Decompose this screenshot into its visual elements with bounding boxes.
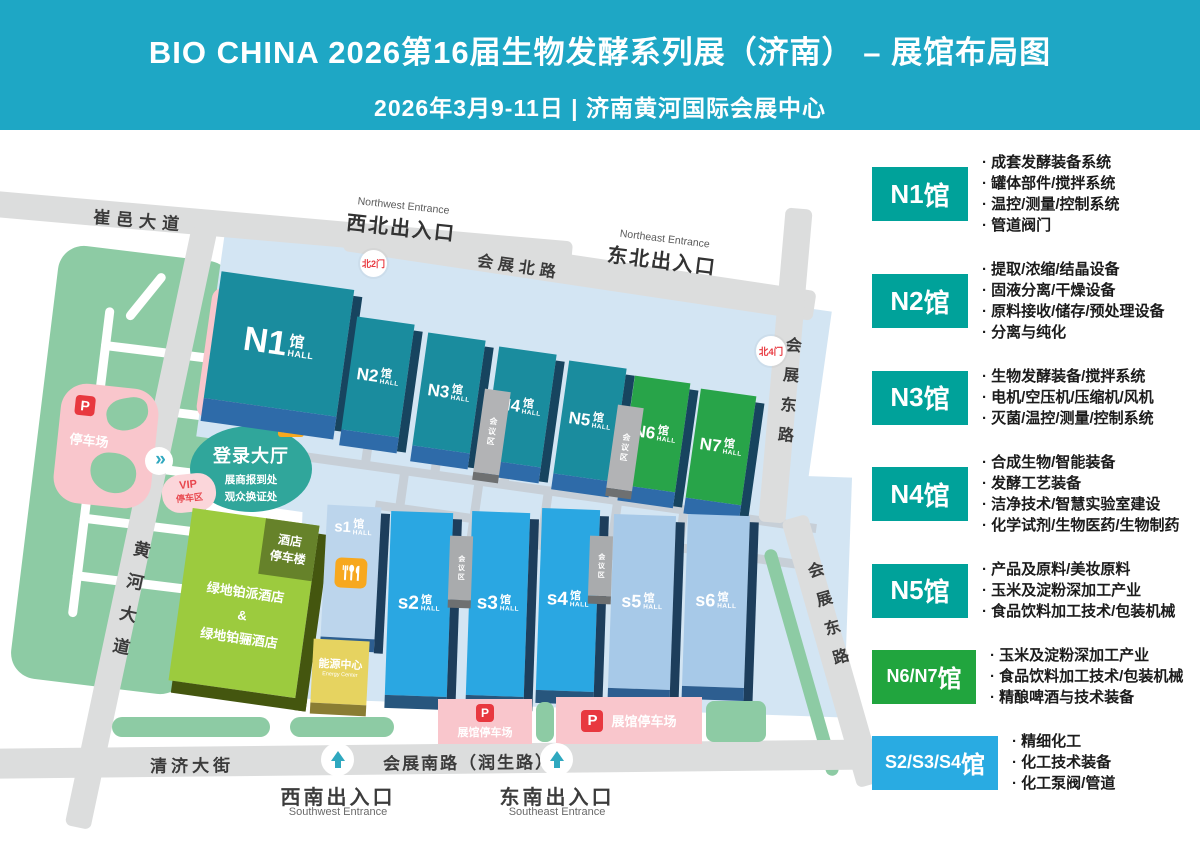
parking-lane-line — [124, 271, 167, 322]
chevrons-icon: » — [155, 449, 163, 470]
gate-north4-badge: 北4门 — [756, 336, 786, 366]
legend-item: 发酵工艺装备 — [982, 473, 1180, 494]
southeast-gate-icon — [540, 743, 573, 776]
bush-blob — [88, 451, 138, 496]
legend-item: 罐体部件/搅拌系统 — [982, 173, 1120, 194]
legend-item: 食品饮料加工技术/包装机械 — [990, 666, 1183, 687]
legend-hall-prefix: N3 — [890, 382, 923, 413]
hall-s3-label: s3 — [476, 592, 498, 615]
legend-hall-prefix: N5 — [890, 575, 923, 606]
hall-n2-label: N2 — [355, 364, 379, 387]
hall-s1-label: s1 — [334, 519, 352, 537]
southwest-gate-icon — [321, 743, 354, 776]
legend-box-n6n7: N6/N7馆 — [872, 650, 976, 704]
energy-center-front — [310, 702, 366, 716]
legend-item: 原料接收/储存/预处理设备 — [982, 301, 1165, 322]
road-label-huizhan-south: 会展南路（润生路） — [383, 748, 554, 775]
hall-sub: HALL — [722, 450, 742, 459]
gate-north4-label: 北4门 — [759, 344, 783, 358]
parking-icon: P — [581, 710, 603, 732]
legend: N1馆 成套发酵装备系统 罐体部件/搅拌系统 温控/测量/控制系统 管道阀门 N… — [872, 152, 1194, 817]
hall-sub: HALL — [450, 396, 470, 405]
meeting-area-label: 会议区 — [484, 416, 499, 447]
hall-sub: HALL — [421, 606, 441, 613]
legend-row-n5: N5馆 产品及原料/美妆原料 玉米及淀粉深加工产业 食品饮料加工技术/包装机械 — [872, 559, 1194, 622]
hotel-parking-tower: 酒店 停车楼 — [258, 518, 319, 581]
parking-p: P — [587, 712, 597, 729]
hall-parking-lot-b: P 展馆停车场 — [556, 697, 702, 744]
legend-row-n1: N1馆 成套发酵装备系统 罐体部件/搅拌系统 温控/测量/控制系统 管道阀门 — [872, 152, 1194, 236]
hall-sub: HALL — [717, 603, 737, 610]
parking-lane-line — [101, 341, 219, 364]
legend-hall-prefix: N6/N7 — [886, 666, 937, 687]
header-banner: BIO CHINA 2026第16届生物发酵系列展（济南） – 展馆布局图 20… — [0, 0, 1200, 130]
legend-hall-suffix: 馆 — [924, 379, 950, 416]
hedge-south-3 — [536, 702, 554, 742]
hall-sub: HALL — [570, 602, 590, 609]
road-south: 清济大街 会展南路（润生路） — [0, 739, 893, 778]
hall-n7-label: N7 — [698, 434, 722, 457]
gate-north2-badge: 北2门 — [360, 250, 387, 277]
hall-sub: HALL — [379, 380, 399, 389]
legend-row-n4: N4馆 合成生物/智能装备 发酵工艺装备 洁净技术/智慧实验室建设 化学试剂/生… — [872, 452, 1194, 536]
hall-parking-label: 展馆停车场 — [611, 711, 676, 730]
hedge-south-4 — [706, 701, 766, 742]
meeting-area-label: 会议区 — [617, 432, 632, 463]
legend-box-n2: N2馆 — [872, 274, 968, 328]
energy-center: 能源中心 Energy Center — [310, 639, 369, 706]
meeting-area-label: 会议区 — [595, 552, 606, 579]
page-subtitle: 2026年3月9-11日 | 济南黄河国际会展中心 — [0, 89, 1200, 123]
hall-parking-label: 展馆停车场 — [458, 724, 513, 740]
restaurant-box — [334, 557, 368, 589]
legend-row-n6n7: N6/N7馆 玉米及淀粉深加工产业 食品饮料加工技术/包装机械 精酿啤酒与技术装… — [872, 645, 1194, 708]
legend-item: 玉米及淀粉深加工产业 — [982, 580, 1175, 601]
legend-item: 生物发酵装备/搅拌系统 — [982, 366, 1154, 387]
legend-item: 成套发酵装备系统 — [982, 152, 1120, 173]
legend-item: 管道阀门 — [982, 215, 1120, 236]
parking-icon: P — [74, 395, 96, 417]
hall-n3-label: N3 — [426, 380, 450, 403]
meeting-area-label: 会议区 — [455, 554, 466, 581]
up-arrow-icon — [550, 751, 564, 761]
legend-item: 化学试剂/生物医药/生物制药 — [982, 515, 1180, 536]
legend-box-n3: N3馆 — [872, 371, 968, 425]
legend-hall-prefix: N4 — [890, 479, 923, 510]
legend-item: 洁净技术/智慧实验室建设 — [982, 494, 1180, 515]
up-arrow-stem — [335, 761, 341, 768]
legend-hall-suffix: 馆 — [938, 659, 962, 694]
legend-row-n3: N3馆 生物发酵装备/搅拌系统 电机/空压机/压缩机/风机 灭菌/温控/测量/控… — [872, 366, 1194, 429]
legend-hall-suffix: 馆 — [924, 572, 950, 609]
legend-hall-suffix: 馆 — [924, 283, 950, 320]
meeting-area-s4-s5: 会议区 — [588, 536, 613, 597]
legend-hall-suffix: 馆 — [924, 176, 950, 213]
hotel-front — [171, 681, 307, 712]
legend-box-s2s3s4: S2/S3/S4馆 — [872, 736, 998, 790]
legend-item: 精酿啤酒与技术装备 — [990, 687, 1183, 708]
legend-items-n3: 生物发酵装备/搅拌系统 电机/空压机/压缩机/风机 灭菌/温控/测量/控制系统 — [982, 366, 1154, 429]
hall-sub: HALL — [643, 604, 663, 611]
legend-box-n1: N1馆 — [872, 167, 968, 221]
bush-blob — [104, 395, 150, 433]
parking-icon: P — [476, 704, 494, 722]
hall-s6-label: s6 — [695, 590, 716, 612]
meeting-area-s2-s3: 会议区 — [448, 536, 473, 601]
hall-s6: s6 馆HALL — [682, 514, 750, 688]
west-parking-lot: P 停车场 — [51, 381, 161, 511]
energy-center-zh: 能源中心 — [312, 655, 369, 674]
legend-hall-suffix: 馆 — [961, 745, 985, 780]
hall-sub: HALL — [521, 410, 541, 419]
hotel-names: 绿地铂派酒店 & 绿地铂骊酒店 — [174, 573, 310, 658]
exhibition-layout-map: BIO CHINA 2026第16届生物发酵系列展（济南） – 展馆布局图 20… — [0, 0, 1200, 841]
legend-hall-prefix: N2 — [890, 286, 923, 317]
hall-sub: HALL — [656, 437, 676, 446]
entrance-southeast-en: Southeast Entrance — [492, 806, 622, 818]
legend-item: 食品饮料加工技术/包装机械 — [982, 601, 1175, 622]
hall-s2-label: s2 — [397, 592, 419, 615]
hall-s2: s2 馆HALL — [385, 511, 453, 697]
legend-item: 产品及原料/美妆原料 — [982, 559, 1175, 580]
hotel-building: 酒店 停车楼 绿地铂派酒店 & 绿地铂骊酒店 — [169, 508, 320, 698]
legend-item: 化工技术装备 — [1012, 752, 1115, 773]
login-hall-title: 登录大厅 — [190, 442, 312, 468]
up-arrow-icon — [331, 751, 345, 761]
hall-s5-label: s5 — [621, 591, 642, 613]
legend-item: 固液分离/干燥设备 — [982, 280, 1165, 301]
hall-n1: N1 馆HALL — [204, 271, 355, 416]
hall-sub: HALL — [591, 424, 611, 433]
legend-item: 提取/浓缩/结晶设备 — [982, 259, 1165, 280]
parking-p: P — [481, 706, 489, 720]
hall-s4-label: s4 — [546, 588, 568, 611]
legend-items-n6n7: 玉米及淀粉深加工产业 食品饮料加工技术/包装机械 精酿啤酒与技术装备 — [990, 645, 1183, 708]
legend-items-n2: 提取/浓缩/结晶设备 固液分离/干燥设备 原料接收/储存/预处理设备 分离与纯化 — [982, 259, 1165, 343]
legend-items-n4: 合成生物/智能装备 发酵工艺装备 洁净技术/智慧实验室建设 化学试剂/生物医药/… — [982, 452, 1180, 536]
legend-item: 温控/测量/控制系统 — [982, 194, 1120, 215]
legend-row-s2s3s4: S2/S3/S4馆 精细化工 化工技术装备 化工泵阀/管道 — [872, 731, 1194, 794]
entrance-southwest-en: Southwest Entrance — [273, 806, 403, 818]
vip-parking: VIP 停车区 — [160, 471, 218, 514]
restaurant-icon — [340, 562, 361, 583]
parking-p: P — [80, 397, 91, 414]
hall-s5: s5 馆HALL — [608, 514, 676, 690]
legend-item: 化工泵阀/管道 — [1012, 773, 1115, 794]
legend-item: 分离与纯化 — [982, 322, 1165, 343]
page-title: BIO CHINA 2026第16届生物发酵系列展（济南） – 展馆布局图 — [0, 0, 1200, 72]
hedge-south-1 — [112, 717, 270, 737]
road-label-qingji: 清济大街 — [150, 751, 234, 777]
legend-item: 合成生物/智能装备 — [982, 452, 1180, 473]
hall-sub: HALL — [287, 348, 314, 361]
hall-parking-lot-a: P 展馆停车场 — [438, 699, 532, 744]
legend-items-s2s3s4: 精细化工 化工技术装备 化工泵阀/管道 — [1012, 731, 1115, 794]
legend-row-n2: N2馆 提取/浓缩/结晶设备 固液分离/干燥设备 原料接收/储存/预处理设备 分… — [872, 259, 1194, 343]
west-gate-icon: » — [145, 447, 173, 475]
hall-n1-label: N1 — [241, 320, 289, 365]
legend-items-n1: 成套发酵装备系统 罐体部件/搅拌系统 温控/测量/控制系统 管道阀门 — [982, 152, 1120, 236]
hall-sub: HALL — [353, 530, 373, 538]
gate-north2-label: 北2门 — [362, 257, 385, 270]
legend-box-n5: N5馆 — [872, 564, 968, 618]
legend-box-n4: N4馆 — [872, 467, 968, 521]
hall-s1: s1 馆HALL — [321, 505, 382, 640]
west-parking-label: 停车场 — [69, 428, 110, 451]
legend-item: 玉米及淀粉深加工产业 — [990, 645, 1183, 666]
legend-hall-suffix: 馆 — [924, 476, 950, 513]
hall-sub: HALL — [500, 606, 520, 613]
legend-item: 灭菌/温控/测量/控制系统 — [982, 408, 1154, 429]
legend-item: 精细化工 — [1012, 731, 1115, 752]
hall-n5-label: N5 — [567, 408, 591, 431]
legend-items-n5: 产品及原料/美妆原料 玉米及淀粉深加工产业 食品饮料加工技术/包装机械 — [982, 559, 1175, 622]
up-arrow-stem — [554, 761, 560, 768]
hedge-south-2 — [290, 717, 394, 737]
legend-item: 电机/空压机/压缩机/风机 — [982, 387, 1154, 408]
hall-s3: s3 馆HALL — [466, 511, 530, 697]
legend-hall-prefix: N1 — [890, 179, 923, 210]
legend-hall-prefix: S2/S3/S4 — [885, 752, 961, 773]
road-label-cuiyi: 崔邑大道 — [92, 203, 186, 236]
